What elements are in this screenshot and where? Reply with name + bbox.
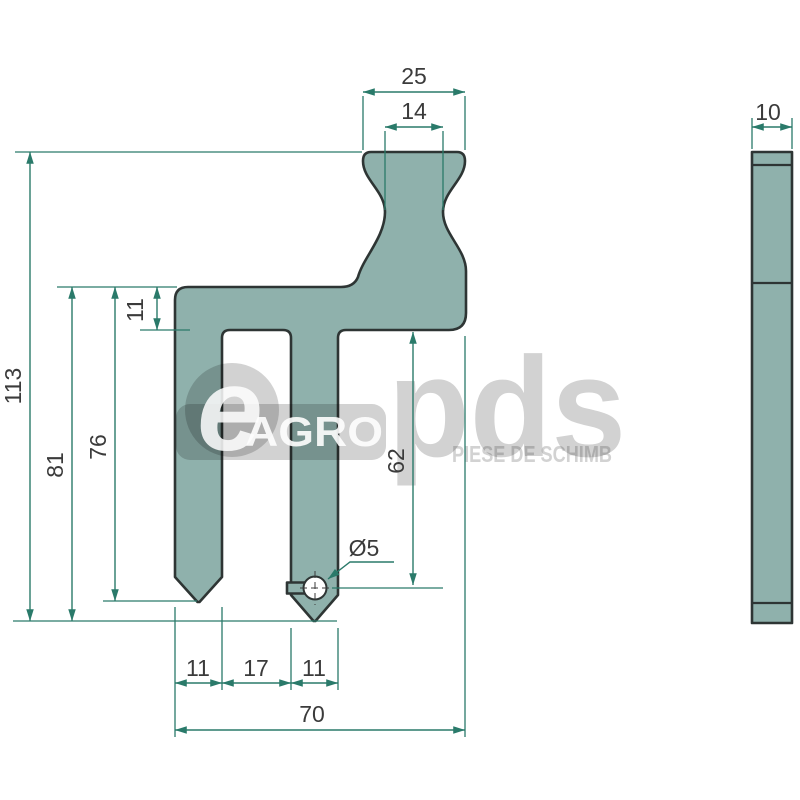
dim-label-tine-gap: 17: [243, 655, 269, 681]
dim-label-hole-diameter: Ø5: [349, 535, 380, 561]
watermark-brand-text: AGRO: [245, 408, 383, 455]
dim-label-head-width-inner: 14: [401, 98, 427, 124]
drawing-svg: pds PIESE DE SCHIMB e AGRO: [0, 0, 800, 800]
dim-label-head-width-outer: 25: [401, 63, 427, 89]
dim-label-total-width: 70: [299, 701, 325, 727]
side-view-outline: [752, 152, 792, 623]
dim-label-height-to-mid-tip: 81: [42, 452, 68, 478]
side-view-part: [752, 152, 792, 623]
technical-drawing-canvas: pds PIESE DE SCHIMB e AGRO: [0, 0, 800, 800]
dim-label-height-to-left-tip: 76: [85, 434, 111, 460]
dim-label-arm-to-hole: 62: [383, 448, 409, 474]
dim-label-mid-tine-width: 11: [302, 655, 326, 681]
watermark-tagline: PIESE DE SCHIMB: [452, 441, 612, 467]
dim-label-side-thickness: 10: [755, 99, 781, 125]
dim-label-left-tine-width: 11: [186, 655, 210, 681]
dim-label-arm-thickness: 11: [122, 298, 148, 322]
dim-label-total-height: 113: [0, 368, 26, 405]
